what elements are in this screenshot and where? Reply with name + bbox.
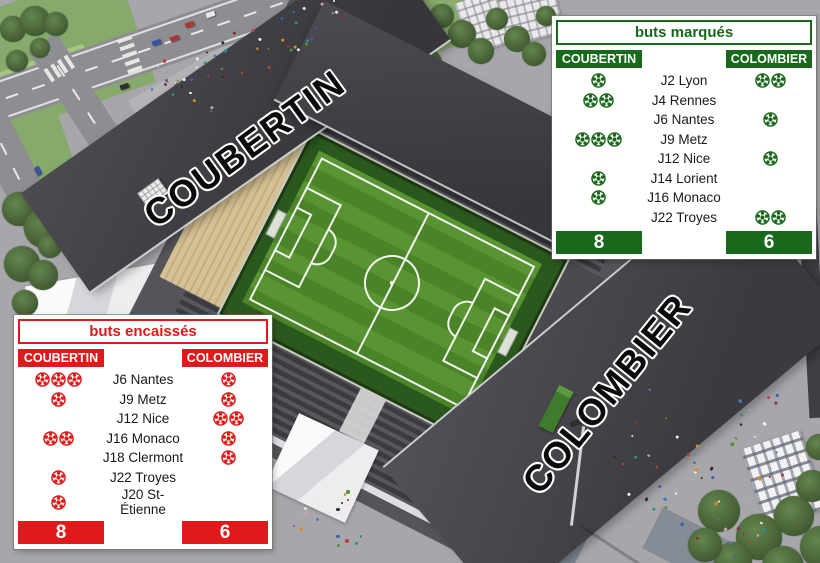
total-colombier: 6 [182, 521, 268, 544]
table-row: J2 Lyon [552, 71, 816, 91]
table-row: J4 Rennes [552, 91, 816, 111]
colombier-goal-icons [724, 112, 816, 127]
tree [28, 260, 58, 290]
colombier-goal-icons [184, 450, 272, 465]
soccer-ball-icon [51, 372, 66, 387]
tree [486, 8, 508, 30]
tree [44, 12, 68, 36]
soccer-ball-icon [591, 190, 606, 205]
column-header-coubertin: COUBERTIN [556, 50, 642, 68]
match-label: J20 St-Étienne [102, 487, 184, 517]
soccer-ball-icon [763, 112, 778, 127]
tree [12, 290, 38, 316]
tree [522, 42, 546, 66]
match-label: J22 Troyes [102, 470, 184, 485]
table-row: J16 Monaco [14, 429, 272, 449]
soccer-ball-icon [755, 210, 770, 225]
crowd [148, 52, 200, 104]
soccer-ball-icon [51, 470, 66, 485]
soccer-ball-icon [67, 372, 82, 387]
soccer-ball-icon [591, 171, 606, 186]
coubertin-goal-icons [552, 171, 644, 186]
table-row: J22 Troyes [552, 208, 816, 228]
match-label: J4 Rennes [644, 93, 724, 108]
match-label: J9 Metz [102, 392, 184, 407]
table-row: J16 Monaco [552, 188, 816, 208]
coubertin-goal-icons [14, 431, 102, 446]
soccer-ball-icon [755, 73, 770, 88]
match-label: J2 Lyon [644, 73, 724, 88]
table-row: J14 Lorient [552, 169, 816, 189]
table-row: J12 Nice [552, 149, 816, 169]
match-label: J12 Nice [644, 151, 724, 166]
soccer-ball-icon [599, 93, 614, 108]
match-label: J6 Nantes [102, 372, 184, 387]
coubertin-goal-icons [552, 132, 644, 147]
tree [30, 38, 50, 58]
colombier-goal-icons [724, 210, 816, 225]
colombier-goal-icons [184, 431, 272, 446]
table-row: J6 Nantes [552, 110, 816, 130]
soccer-ball-icon [583, 93, 598, 108]
crowd [288, 490, 366, 548]
soccer-ball-icon [51, 495, 66, 510]
soccer-ball-icon [229, 411, 244, 426]
colombier-goal-icons [724, 151, 816, 166]
table-row: J9 Metz [552, 130, 816, 150]
coubertin-goal-icons [14, 392, 102, 407]
tree [468, 38, 494, 64]
soccer-ball-icon [43, 431, 58, 446]
column-header-colombier: COLOMBIER [726, 50, 812, 68]
table-row: J22 Troyes [14, 468, 272, 488]
goals-scored-rows: J2 Lyon J4 RennesJ6 Nantes J9 MetzJ12 Ni… [552, 71, 816, 227]
match-label: J18 Clermont [102, 450, 184, 465]
soccer-ball-icon [771, 210, 786, 225]
table-row: J20 St-Étienne [14, 487, 272, 507]
coubertin-goal-icons [14, 495, 102, 510]
soccer-ball-icon [221, 431, 236, 446]
tree [6, 50, 28, 72]
colombier-goal-icons [184, 411, 272, 426]
soccer-ball-icon [771, 73, 786, 88]
soccer-ball-icon [763, 151, 778, 166]
stadium-aerial-scene: COUBERTIN COLOMBIER buts marqués COUBERT… [0, 0, 820, 563]
soccer-ball-icon [35, 372, 50, 387]
match-label: J22 Troyes [644, 210, 724, 225]
total-coubertin: 8 [556, 231, 642, 254]
total-coubertin: 8 [18, 521, 104, 544]
soccer-ball-icon [221, 450, 236, 465]
colombier-goal-icons [724, 73, 816, 88]
soccer-ball-icon [575, 132, 590, 147]
match-label: J9 Metz [644, 132, 724, 147]
soccer-ball-icon [607, 132, 622, 147]
colombier-goal-icons [184, 392, 272, 407]
match-label: J14 Lorient [644, 171, 724, 186]
match-label: J12 Nice [102, 411, 184, 426]
goals-conceded-panel: buts encaissés COUBERTIN COLOMBIER J6 Na… [14, 315, 272, 549]
goals-scored-panel: buts marqués COUBERTIN COLOMBIER J2 Lyon… [552, 16, 816, 259]
table-row: J9 Metz [14, 390, 272, 410]
soccer-ball-icon [591, 132, 606, 147]
match-label: J16 Monaco [644, 190, 724, 205]
coubertin-goal-icons [552, 73, 644, 88]
soccer-ball-icon [51, 392, 66, 407]
coubertin-goal-icons [552, 190, 644, 205]
table-row: J6 Nantes [14, 370, 272, 390]
coubertin-goal-icons [552, 93, 644, 108]
soccer-ball-icon [591, 73, 606, 88]
match-label: J16 Monaco [102, 431, 184, 446]
soccer-ball-icon [221, 372, 236, 387]
goals-conceded-rows: J6 Nantes J9 Metz J12 Nice J16 Monaco J1… [14, 370, 272, 507]
goals-conceded-title: buts encaissés [18, 319, 268, 344]
soccer-ball-icon [213, 411, 228, 426]
table-row: J18 Clermont [14, 448, 272, 468]
coubertin-goal-icons [14, 372, 102, 387]
total-colombier: 6 [726, 231, 812, 254]
match-label: J6 Nantes [644, 112, 724, 127]
goals-scored-title: buts marqués [556, 20, 812, 45]
column-header-colombier: COLOMBIER [182, 349, 268, 367]
colombier-goal-icons [184, 372, 272, 387]
table-row: J12 Nice [14, 409, 272, 429]
tree [796, 470, 820, 502]
column-header-coubertin: COUBERTIN [18, 349, 104, 367]
soccer-ball-icon [59, 431, 74, 446]
coubertin-goal-icons [14, 470, 102, 485]
soccer-ball-icon [221, 392, 236, 407]
